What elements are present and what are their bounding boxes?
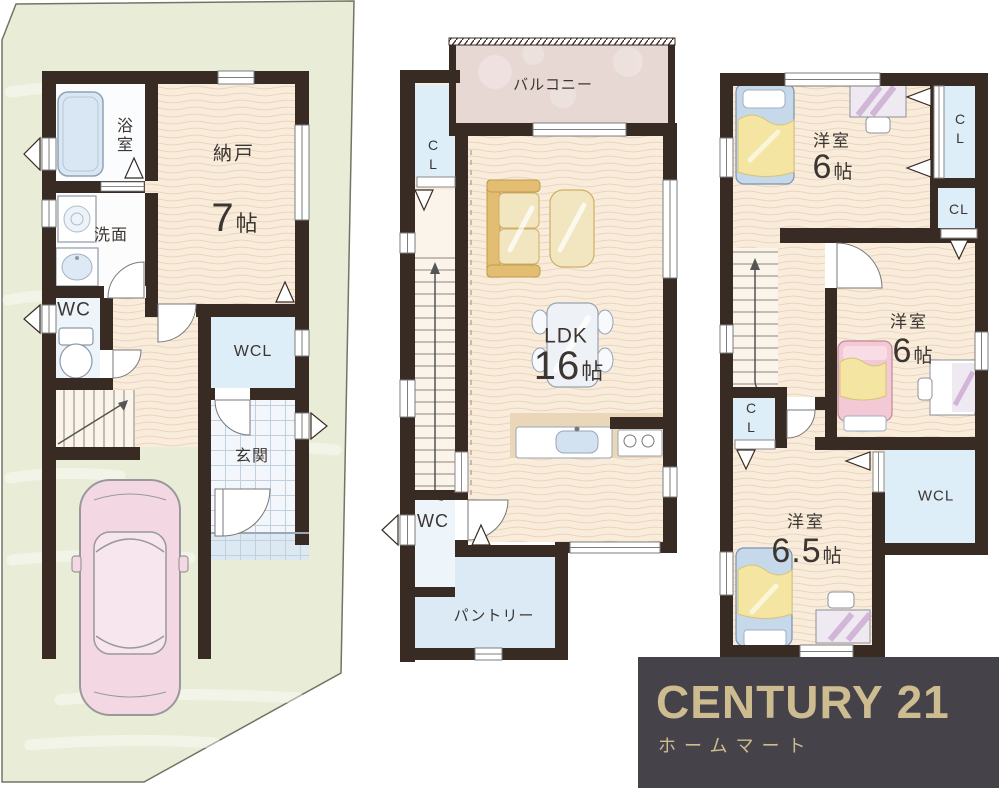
label-wcl-1f: WCL	[234, 344, 273, 360]
label-room-bottom-size: 6.5帖	[771, 534, 842, 568]
bed-top-icon	[736, 84, 794, 184]
label-room-top-size: 6帖	[813, 150, 854, 184]
car-icon	[72, 480, 188, 715]
label-entrance: 玄関	[235, 449, 269, 465]
label-storage: 納戸	[213, 145, 255, 164]
label-cl-2f: CL	[426, 137, 440, 175]
label-cl-3f-top: CL	[953, 111, 967, 149]
vanity-sink-icon	[56, 248, 98, 286]
label-balcony: バルコニー	[513, 78, 593, 93]
label-wc-2f: WC	[417, 512, 449, 530]
label-pantry: パントリー	[454, 609, 535, 624]
label-washroom: 洗面	[94, 228, 128, 244]
label-cl-3f-left: CL	[744, 400, 758, 438]
lounge-chair-icon	[550, 190, 594, 267]
label-ldk-size: 16帖	[534, 346, 605, 386]
label-wc-1f: WC	[57, 301, 91, 320]
label-cl-3f-mid: CL	[949, 202, 969, 216]
logo-brand-text: CENTURY 21	[656, 679, 950, 725]
label-storage-size: 7帖	[211, 198, 258, 238]
label-room-mid-size: 6帖	[893, 334, 934, 368]
sofa-icon	[487, 180, 540, 277]
label-wcl-3f: WCL	[918, 489, 954, 504]
floorplan-page: 浴室 洗面 WC 納戸 7帖 WCL 玄関 バルコニー CL LDK 16帖 W…	[0, 0, 999, 788]
label-bath: 浴室	[114, 117, 130, 155]
bed-mid-icon	[838, 341, 892, 431]
century21-logo: CENTURY 21 ホームマート	[638, 657, 999, 788]
washing-machine-icon	[58, 196, 96, 242]
label-room-bottom: 洋室	[787, 514, 825, 531]
toilet-1f-icon	[59, 328, 93, 378]
label-room-top: 洋室	[813, 133, 851, 150]
balcony-rail	[449, 38, 675, 45]
logo-company-text: ホームマート	[658, 737, 813, 755]
floor2-plan	[382, 38, 677, 662]
label-room-mid: 洋室	[890, 314, 928, 331]
floor3-plan	[720, 73, 988, 658]
bathtub-icon	[58, 92, 103, 176]
